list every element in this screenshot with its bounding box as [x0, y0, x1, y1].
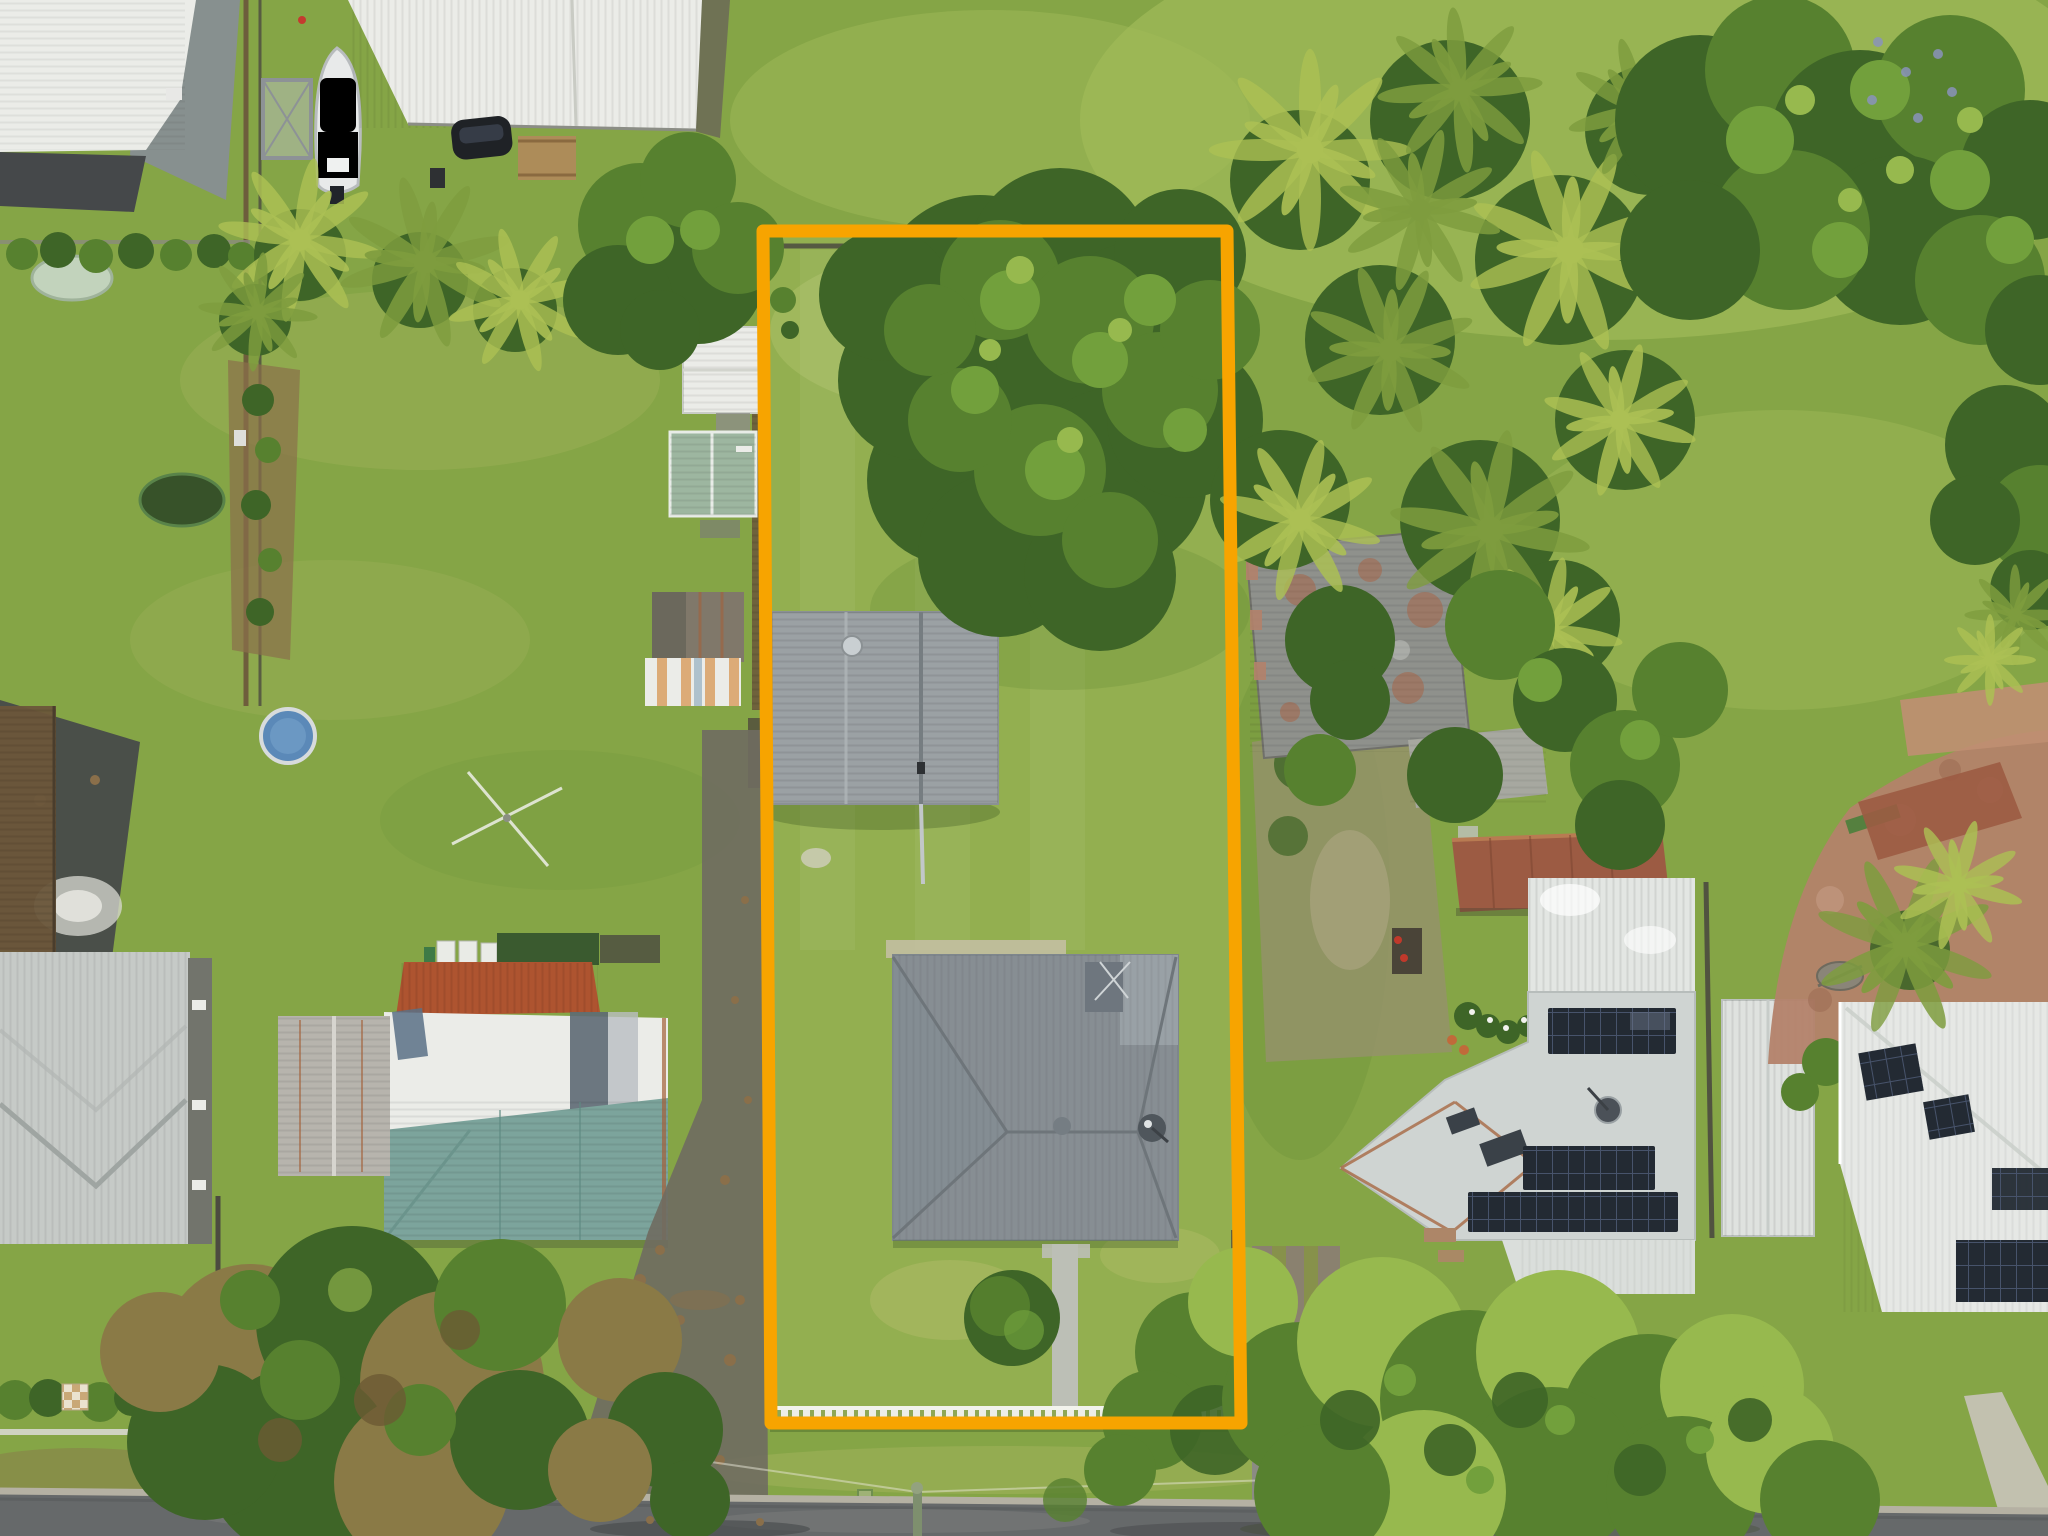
timber-deck-ramp	[518, 136, 576, 180]
downpipe	[921, 804, 923, 884]
solar-array	[1923, 1094, 1975, 1139]
wheelie-bin	[430, 168, 445, 188]
ac-unit	[166, 88, 182, 100]
solar-array	[1468, 1192, 1678, 1232]
box-trailer	[263, 80, 311, 158]
grey-gable-shed-left	[278, 1016, 390, 1176]
corner-building-top-left	[0, 0, 240, 212]
ladder-clutter	[716, 413, 750, 433]
yard-clutter	[1392, 928, 1422, 974]
flat-green-roof	[497, 933, 599, 965]
above-ground-pool	[261, 709, 315, 763]
roof-vent	[1053, 1117, 1071, 1135]
roof-vent	[842, 636, 862, 656]
carport-car	[450, 115, 514, 161]
white-roof-house-top	[348, 0, 730, 138]
grey-roof-house-bottom-left	[0, 952, 212, 1244]
round-shrub	[964, 1270, 1060, 1366]
mulch-bed-left	[228, 360, 300, 660]
rear-structure	[1085, 962, 1123, 1012]
trampoline	[140, 474, 224, 526]
far-right-solar-house	[1840, 1002, 2048, 1312]
solar-array	[1548, 1008, 1676, 1054]
solar-array	[1523, 1146, 1655, 1190]
flag-marker	[298, 16, 306, 24]
green-bin	[424, 947, 435, 964]
aerial-photo: Top-down drone photograph of a suburban …	[0, 0, 2048, 1536]
main-house	[893, 955, 1178, 1258]
solar-array	[1858, 1043, 1923, 1100]
checker-paving	[62, 1384, 88, 1410]
corner-driveway	[0, 152, 146, 212]
aerial-photo-canvas	[0, 0, 2048, 1536]
